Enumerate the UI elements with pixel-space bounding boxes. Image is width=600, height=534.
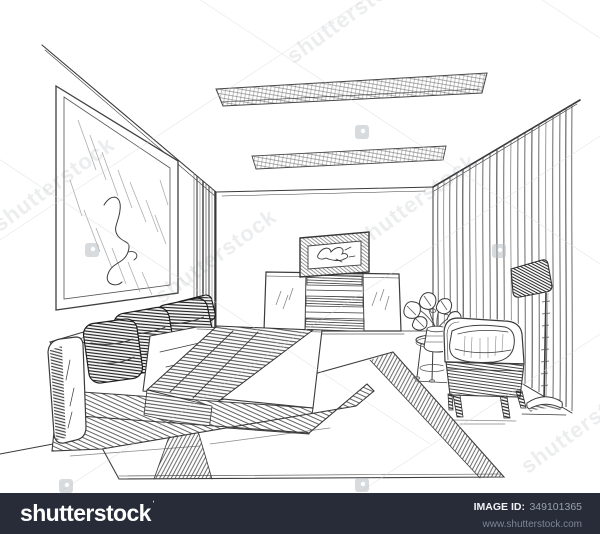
image-meta: IMAGE ID: 349101365 www.shutterstock.com [474, 495, 582, 531]
watermark-text: shutterstock [282, 0, 413, 68]
watermark-text: shutterstock [516, 373, 600, 478]
dresser [262, 272, 404, 334]
watermark-bar: shutterstockˈ IMAGE ID: 349101365 www.sh… [0, 493, 600, 534]
ceiling-lamp-near [252, 146, 446, 169]
logo-mark: ˈ [152, 500, 155, 511]
wall-picture [56, 86, 178, 310]
image-id-line: IMAGE ID: 349101365 [474, 495, 582, 517]
image-id-label: IMAGE ID: [474, 501, 525, 513]
seat-cushion [450, 325, 515, 362]
logo-text: shutterstock [20, 500, 151, 526]
shutterstock-logo: shutterstockˈ [20, 500, 155, 527]
armchair [443, 317, 526, 424]
stock-image-page: shutterstock shutterstock shutterstock s… [0, 0, 600, 534]
watermark-text: shutterstock [350, 148, 481, 253]
ceiling-lamp-far [216, 73, 487, 106]
website-url: www.shutterstock.com [474, 518, 582, 532]
image-id-value: 349101365 [529, 501, 582, 513]
bedroom-sketch-illustration: shutterstock shutterstock shutterstock s… [0, 0, 600, 493]
